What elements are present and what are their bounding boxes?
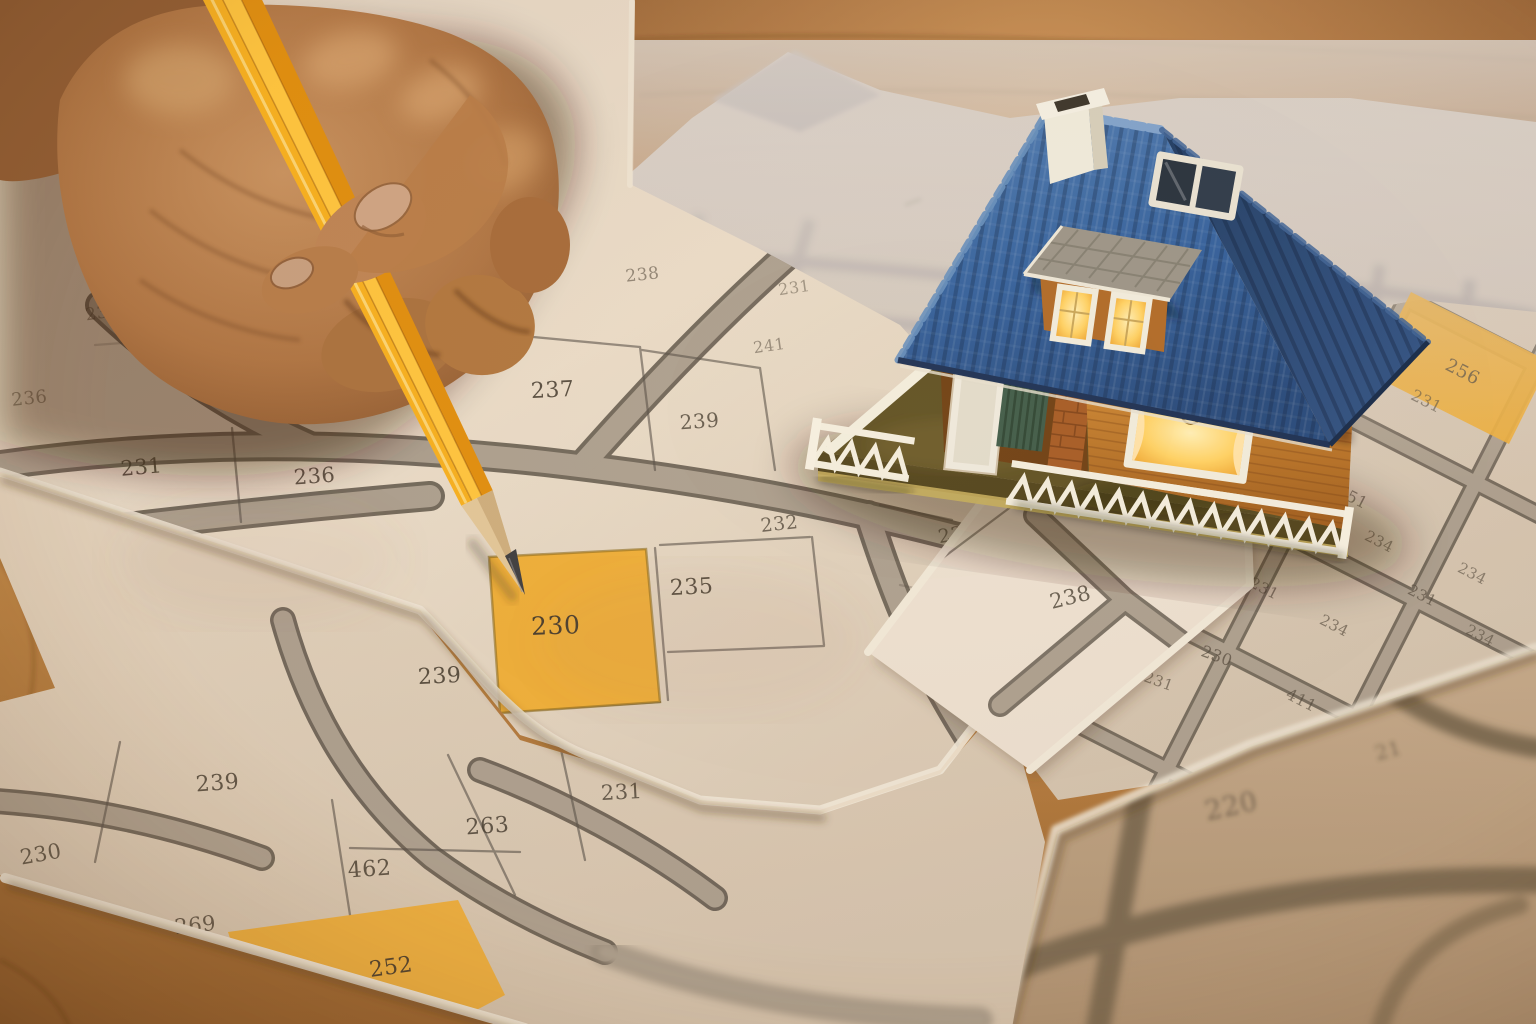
vignette-overlay bbox=[0, 0, 1536, 1024]
scene-canvas: 256 231 251 234 231 234 231 234 234 451 … bbox=[0, 0, 1536, 1024]
cadastral-map-photo: 256 231 251 234 231 234 231 234 234 451 … bbox=[0, 0, 1536, 1024]
